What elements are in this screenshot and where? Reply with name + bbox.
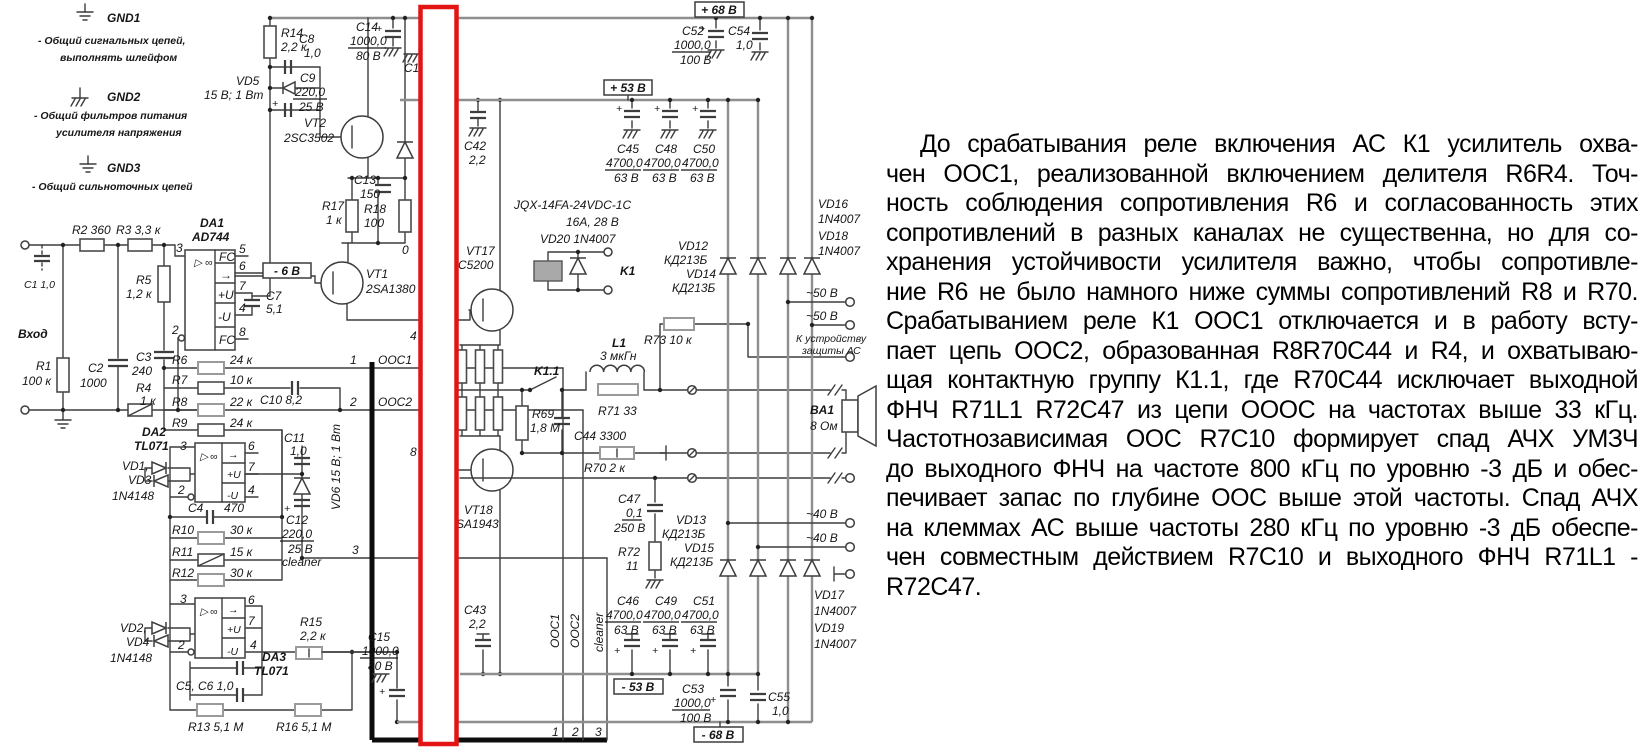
article-line: Частотнозависимая ООС R7C10 формирует сп… <box>886 425 1638 455</box>
label-r7: R7 <box>172 373 189 387</box>
label-r12: R12 <box>172 566 194 580</box>
label-relay-rating: 16А, 28 В <box>566 215 619 229</box>
label-vd5v: 15 В; 1 Вт <box>204 88 263 102</box>
label-vd18: VD18 <box>818 229 848 243</box>
article-line: До срабатывания реле включения АС К1 уси… <box>886 130 1638 160</box>
article-line: щая контактную группу К1.1, где R70C44 и… <box>886 366 1638 396</box>
label-c14v: 1000,0 <box>350 34 387 48</box>
label-k1: K1 <box>620 264 636 278</box>
label-c54: C54 <box>728 24 750 38</box>
da1-pin6: 6 <box>239 259 246 273</box>
voltage-m68: - 68 В <box>702 728 735 742</box>
label-r10v: 30 к <box>230 523 254 537</box>
voltage-p68: + 68 В <box>701 3 737 17</box>
ooc2-pin: 2 <box>349 395 357 409</box>
label-k11: K1.1 <box>534 364 560 378</box>
label-r8v: 22 к <box>229 395 254 409</box>
da1-pin5: 5 <box>239 242 246 256</box>
label-r72: R72 <box>618 545 640 559</box>
da3-pin2: 2 <box>177 638 185 652</box>
cable-pin1: 1 <box>552 725 559 739</box>
label-c48u: 63 В <box>652 171 677 185</box>
label-c9v: 220,0 <box>294 85 325 99</box>
label-r73: R73 10 к <box>644 333 693 347</box>
label-vd17: VD17 <box>814 588 845 602</box>
label-r4: R4 <box>136 381 152 395</box>
opamp-da2: ▷ ∞ → +U -U 3 2 6 7 4 <box>177 439 258 502</box>
label-c45: C45 <box>617 142 639 156</box>
label-r15: R15 <box>300 615 322 629</box>
label-vcleaner: cleaner <box>592 612 606 652</box>
label-c15: C15 <box>368 630 390 644</box>
label-c49: C49 <box>655 594 677 608</box>
label-da2t: TL071 <box>134 439 169 453</box>
label-r11v: 15 к <box>230 545 254 559</box>
da1-pin8: 8 <box>239 325 246 339</box>
label-c47: C47 <box>618 492 641 506</box>
label-vd4: VD4 <box>126 635 150 649</box>
label-vd5: VD5 <box>236 74 260 88</box>
label-r7v: 10 к <box>230 373 254 387</box>
label-frag4: 4 <box>410 329 417 343</box>
label-vd16t: 1N4007 <box>818 212 861 226</box>
label-r69: R69 <box>532 407 554 421</box>
label-vd17t: 1N4007 <box>814 604 857 618</box>
label-c9: C9 <box>300 71 316 85</box>
label-c3v: 240 <box>131 364 152 378</box>
label-c11v: 1,0 <box>290 444 307 458</box>
label-c15u: 80 В <box>368 659 393 673</box>
c45-plus: + <box>616 103 622 115</box>
label-frag8: 8 <box>410 445 417 459</box>
article-line: ние R6 не было намного ниже суммы сопрот… <box>886 278 1638 308</box>
label-c51: C51 <box>693 594 715 608</box>
label-c49u: 63 В <box>652 623 677 637</box>
da2-pin7: 7 <box>248 460 256 474</box>
cable-pin3: 3 <box>595 725 602 739</box>
legend-gnd3: GND3 <box>107 161 141 175</box>
article-line: печивает запас по глубине ООС выше этой … <box>886 484 1638 514</box>
label-c52u: 100 В <box>680 53 711 67</box>
opamp-inf-icon: ∞ <box>205 257 213 269</box>
label-c53: C53 <box>682 682 704 696</box>
label-c12v: 220,0 <box>281 527 312 541</box>
label-c42v: 2,2 <box>468 153 486 167</box>
label-c54v: 1,0 <box>736 38 753 52</box>
c53-plus: + <box>710 694 716 706</box>
label-r71: R71 33 <box>598 404 637 418</box>
label-r17: R17 <box>322 199 345 213</box>
label-r1: R1 <box>36 359 51 373</box>
da1-pin3: 3 <box>176 241 183 255</box>
label-da1: DA1 <box>200 216 224 230</box>
opamp-triangle-icon: ▷ <box>199 451 209 463</box>
label-vd20: VD20 1N4007 <box>540 232 617 246</box>
label-c7v: 5,1 <box>266 302 283 316</box>
label-r10: R10 <box>172 523 194 537</box>
label-c2v: 1000 <box>80 376 107 390</box>
label-c4v: 470 <box>224 501 244 515</box>
label-c43v: 2,2 <box>468 617 486 631</box>
label-c50v: 4700,0 <box>682 156 719 170</box>
label-relay-type: JQX-14FA-24VDC-1C <box>513 198 631 212</box>
label-c49v: 4700,0 <box>644 608 681 622</box>
label-ac50a: ~50 В <box>806 286 838 300</box>
da2-cell-out: → <box>228 449 239 461</box>
label-c52v: 1000,0 <box>674 38 711 52</box>
label-c42: C42 <box>464 139 486 153</box>
label-da1t: AD744 <box>191 230 230 244</box>
legend-gnd1-desc1: - Общий сигнальных цепей, <box>38 35 186 47</box>
label-vt1t: 2SA1380 <box>365 282 416 296</box>
label-c13v: 150 <box>360 187 380 201</box>
legend-gnd2-desc1: - Общий фильтров питания <box>34 110 187 122</box>
label-c14u: 80 В <box>356 49 381 63</box>
label-r9: R9 <box>172 416 188 430</box>
cable-pin2: 2 <box>571 725 579 739</box>
label-c48: C48 <box>655 142 677 156</box>
opamp-inf-icon: ∞ <box>210 606 218 618</box>
da1-cell-fc2: FC <box>219 333 235 347</box>
label-protect2: защиты АС <box>801 345 861 357</box>
label-vd15: VD15 <box>684 541 714 555</box>
label-r72v: 11 <box>626 559 638 573</box>
label-r18v: 100 <box>364 216 384 230</box>
label-c52: C52 <box>682 24 704 38</box>
label-c55: C55 <box>768 690 790 704</box>
label-r5v: 1,2 к <box>126 287 153 301</box>
label-vooc1: ООС1 <box>548 614 562 648</box>
label-c44: C44 3300 <box>574 429 626 443</box>
da3-pin7: 7 <box>248 614 256 628</box>
label-c8: C8 <box>299 32 315 46</box>
label-c53u: 100 В <box>680 711 711 725</box>
label-c47v: 0,1 <box>626 506 643 520</box>
label-c15v: 1000,0 <box>362 644 399 658</box>
da3-pin6: 6 <box>248 593 255 607</box>
label-c8v: 1,0 <box>304 46 321 60</box>
label-ac40a: ~40 В <box>806 507 838 521</box>
voltage-m53: - 53 В <box>622 680 655 694</box>
label-r4v: 1 к <box>140 394 157 408</box>
label-c53v: 1000,0 <box>674 696 711 710</box>
article-line: Срабатыванием реле К1 ООС1 отключается и… <box>886 307 1638 337</box>
label-vt2: VT2 <box>304 116 326 130</box>
da2-pin3: 3 <box>180 439 187 453</box>
article-line: ФНЧ R71L1 R72C47 из цепи ОООС на частота… <box>886 396 1638 426</box>
label-r6v: 24 к <box>229 353 254 367</box>
label-r1v: 100 к <box>22 374 52 388</box>
legend-gnd2: GND2 <box>107 90 141 104</box>
label-l1: L1 <box>612 336 626 350</box>
label-vd14t: КД213Б <box>672 281 716 295</box>
da1-pin7: 7 <box>239 279 247 293</box>
da1-pin4: 4 <box>239 301 246 315</box>
da1-cell-mu: -U <box>218 310 231 324</box>
label-r16: R16 5,1 М <box>276 720 331 734</box>
label-vt18: VT18 <box>464 503 493 517</box>
label-ba1v: 8 Ом <box>810 419 838 433</box>
label-vd13: VD13 <box>676 513 706 527</box>
da1-cell-fc1: FC <box>219 250 235 264</box>
label-c12: C12 <box>286 513 308 527</box>
c48-plus: + <box>654 103 660 115</box>
c50-plus: + <box>692 103 698 115</box>
label-vd6: VD6 15 В; 1 Вт <box>329 424 343 510</box>
label-r3: R3 3,3 к <box>116 223 162 237</box>
label-ac40b: ~40 В <box>806 531 838 545</box>
label-vd19: VD19 <box>814 621 844 635</box>
label-c43: C43 <box>464 603 486 617</box>
ooc1-pin: 1 <box>350 353 357 367</box>
label-ba1: BA1 <box>810 403 834 417</box>
label-c46v: 4700,0 <box>606 608 643 622</box>
label-l1v: 3 мкГн <box>600 349 637 363</box>
c15-plus: + <box>379 686 385 698</box>
da2-cell-pu: +U <box>227 469 241 481</box>
label-vd1-type: 1N4148 <box>112 489 154 503</box>
label-da3: DA3 <box>262 650 286 664</box>
label-ooc1: ООС1 <box>378 353 412 367</box>
cleaner-pin: 3 <box>352 543 359 557</box>
label-c12u: 25 В <box>287 542 313 556</box>
label-vd19t: 1N4007 <box>814 637 857 651</box>
label-c48v: 4700,0 <box>644 156 681 170</box>
label-vd3: VD3 <box>128 473 152 487</box>
article-text: До срабатывания реле включения АС К1 уси… <box>886 130 1638 602</box>
label-c10: C10 8,2 <box>260 393 302 407</box>
label-vd12: VD12 <box>678 239 708 253</box>
label-c46u: 63 В <box>614 623 639 637</box>
label-r5: R5 <box>136 273 152 287</box>
speaker-ba1: BA1 8 Ом <box>810 386 876 446</box>
label-c51v: 4700,0 <box>682 608 719 622</box>
label-vd12t: КД213Б <box>664 253 708 267</box>
label-c14: C14 <box>356 20 378 34</box>
label-vd2-type: 1N4148 <box>110 651 152 665</box>
label-r69v: 1,8 М <box>530 421 560 435</box>
legend: GND1 - Общий сигнальных цепей, выполнять… <box>32 4 193 193</box>
input-label: Вход <box>18 327 48 341</box>
da1-cell-pu: +U <box>218 288 234 302</box>
da3-cell-out: → <box>228 604 239 616</box>
label-c13: C13 <box>354 173 376 187</box>
da3-pin3: 3 <box>180 592 187 606</box>
da3-pin4: 4 <box>250 638 257 652</box>
servo-stage: ▷ ∞ → +U -U 3 2 6 7 4 DA2 TL071 VD1, VD3… <box>110 424 607 734</box>
da2-pin2: 2 <box>177 483 185 497</box>
article-line: сопротивлений в разных каналах не сущест… <box>886 219 1638 249</box>
da2-pin6: 6 <box>248 439 255 453</box>
article-line: до выходного ФНЧ на частоте 800 кГц по у… <box>886 455 1638 485</box>
label-r15v: 2,2 к <box>299 629 327 643</box>
opamp-da3: ▷ ∞ → +U -U 3 2 6 7 4 <box>177 592 257 658</box>
label-vt1: VT1 <box>366 267 388 281</box>
article-line: на клеммах АС выше частоты 280 кГц по ур… <box>886 514 1638 544</box>
label-c47u: 250 В <box>613 521 645 535</box>
label-vd16: VD16 <box>818 197 848 211</box>
label-c45u: 63 В <box>614 171 639 185</box>
label-vooc2: ООС2 <box>568 614 582 648</box>
label-c2: C2 <box>88 361 104 375</box>
c51-plus: + <box>690 645 696 657</box>
label-r11: R11 <box>172 545 193 559</box>
voltage-p53: + 53 В <box>610 81 646 95</box>
label-c51u: 63 В <box>690 623 715 637</box>
article-line: хранения устойчивости усилителя важно, ч… <box>886 248 1638 278</box>
label-vd1: VD1, <box>122 459 149 473</box>
article-line: чен совместным действием R7C10 и выходно… <box>886 543 1638 573</box>
label-r8: R8 <box>172 395 188 409</box>
label-ooc2: ООС2 <box>378 395 412 409</box>
label-da2: DA2 <box>142 425 166 439</box>
label-c50: C50 <box>693 142 715 156</box>
c9-plus: + <box>272 98 278 110</box>
relay-k1: JQX-14FA-24VDC-1C 16А, 28 В VD20 1N4007 … <box>513 198 636 294</box>
label-vt2t: 2SC3502 <box>283 131 334 145</box>
label-r12v: 30 к <box>230 566 254 580</box>
da3-cell-mu: -U <box>227 646 238 658</box>
label-vd13t: КД213Б <box>662 527 706 541</box>
legend-gnd3-desc1: - Общий сильноточных цепей <box>32 181 193 193</box>
label-frag0: 0 <box>402 243 409 257</box>
label-vd18t: 1N4007 <box>818 244 861 258</box>
label-vt18t: SA1943 <box>456 517 499 531</box>
label-r17v: 1 к <box>326 213 343 227</box>
label-c56: C5, C6 1,0 <box>176 679 234 693</box>
da3-cell-pu: +U <box>227 624 241 636</box>
label-c1: C1 1,0 <box>24 279 55 291</box>
label-vd14: VD14 <box>686 267 716 281</box>
red-highlight-box: 0 4 8 <box>402 7 457 744</box>
label-c9u: 25 В <box>298 100 324 114</box>
label-vd2: VD2, <box>120 621 147 635</box>
label-ac50b: ~50 В <box>806 309 838 323</box>
label-da3t: TL071 <box>254 664 289 678</box>
label-c50u: 63 В <box>690 171 715 185</box>
label-r18: R18 <box>364 202 386 216</box>
voltage-m6: - 6 В <box>274 264 300 278</box>
c49-plus: + <box>652 645 658 657</box>
article-line: ность соблюдения сопротивления R6 и согл… <box>886 189 1638 219</box>
label-r2: R2 360 <box>72 223 111 237</box>
label-c46: C46 <box>617 594 639 608</box>
legend-gnd1-desc2: выполнять шлейфом <box>60 52 177 64</box>
article-line: R72C47. <box>886 573 1638 603</box>
legend-gnd1: GND1 <box>107 11 141 25</box>
label-c12c: cleaner <box>282 555 322 569</box>
label-c55v: 1,0 <box>772 704 789 718</box>
label-protect1: К устройству <box>796 333 867 345</box>
da1-cell-out: → <box>220 268 232 282</box>
legend-gnd2-desc2: усилителя напряжения <box>55 127 182 139</box>
label-c3: C3 <box>136 350 152 364</box>
da1-pin2: 2 <box>171 323 179 337</box>
label-c45v: 4700,0 <box>606 156 643 170</box>
opamp-inf-icon: ∞ <box>210 451 218 463</box>
opamp-da1: ▷ ∞ FC → +U -U FC 3 2 5 6 7 4 8 DA1 AD74… <box>171 216 263 350</box>
label-r13: R13 5,1 М <box>188 720 243 734</box>
label-c11: C11 <box>284 431 305 445</box>
label-r6: R6 <box>172 353 188 367</box>
opamp-triangle-icon: ▷ <box>193 257 203 269</box>
amplifier-schematic: GND1 - Общий сигнальных цепей, выполнять… <box>0 0 880 756</box>
label-vd15t: КД213Б <box>670 555 714 569</box>
opamp-triangle-icon: ▷ <box>199 606 209 618</box>
da2-pin4: 4 <box>248 483 255 497</box>
label-r9v: 24 к <box>229 416 254 430</box>
article-line: пает цепь ООС2, образованная R8R70C44 и … <box>886 337 1638 367</box>
article-line: чен ООС1, реализованной включением делит… <box>886 160 1638 190</box>
label-r70: R70 2 к <box>584 461 626 475</box>
label-c4: C4 <box>188 501 204 515</box>
page: GND1 - Общий сигнальных цепей, выполнять… <box>0 0 1643 756</box>
label-vt17: VT17 <box>466 244 496 258</box>
c46-plus: + <box>614 645 620 657</box>
label-vt17t: C5200 <box>458 258 494 272</box>
